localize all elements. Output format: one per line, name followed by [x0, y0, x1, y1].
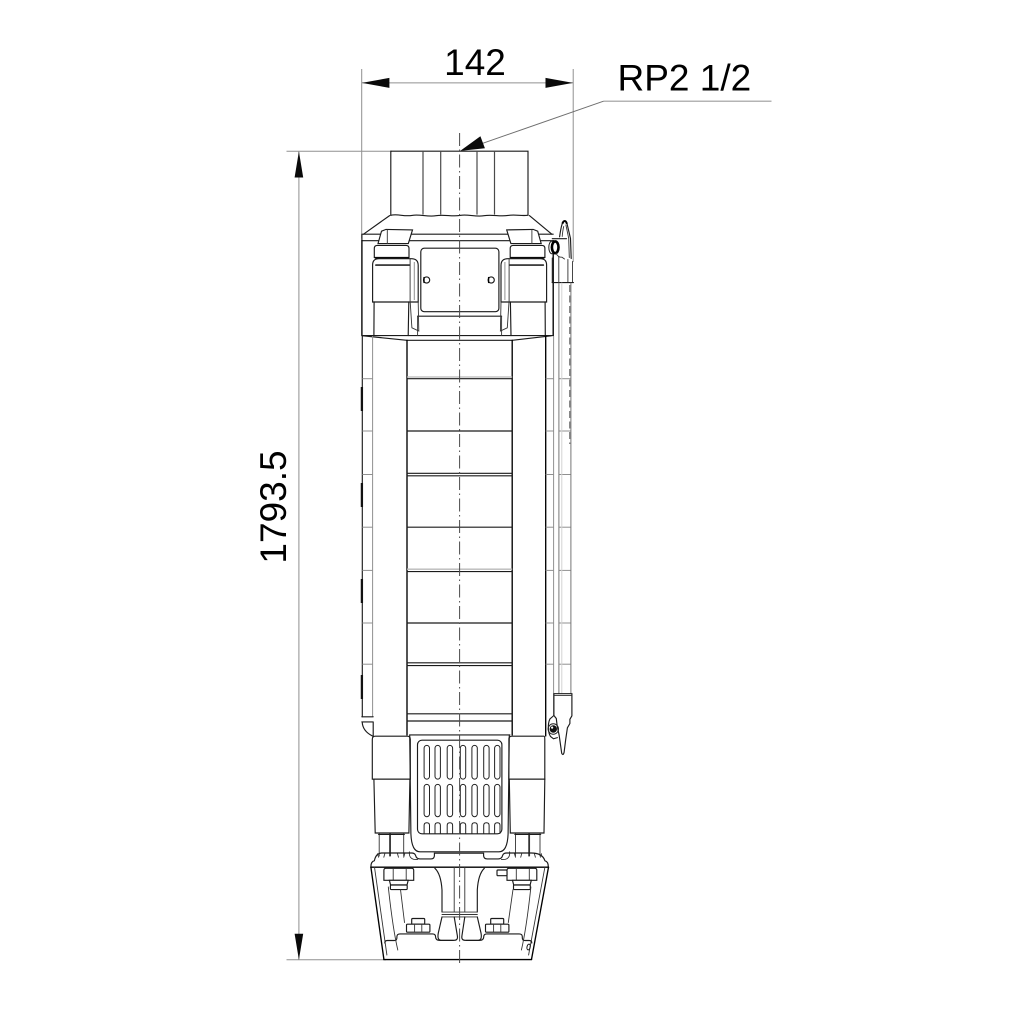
svg-text:RP2 1/2: RP2 1/2 [618, 58, 752, 99]
svg-text:142: 142 [444, 42, 506, 83]
svg-text:1793.5: 1793.5 [253, 450, 294, 563]
